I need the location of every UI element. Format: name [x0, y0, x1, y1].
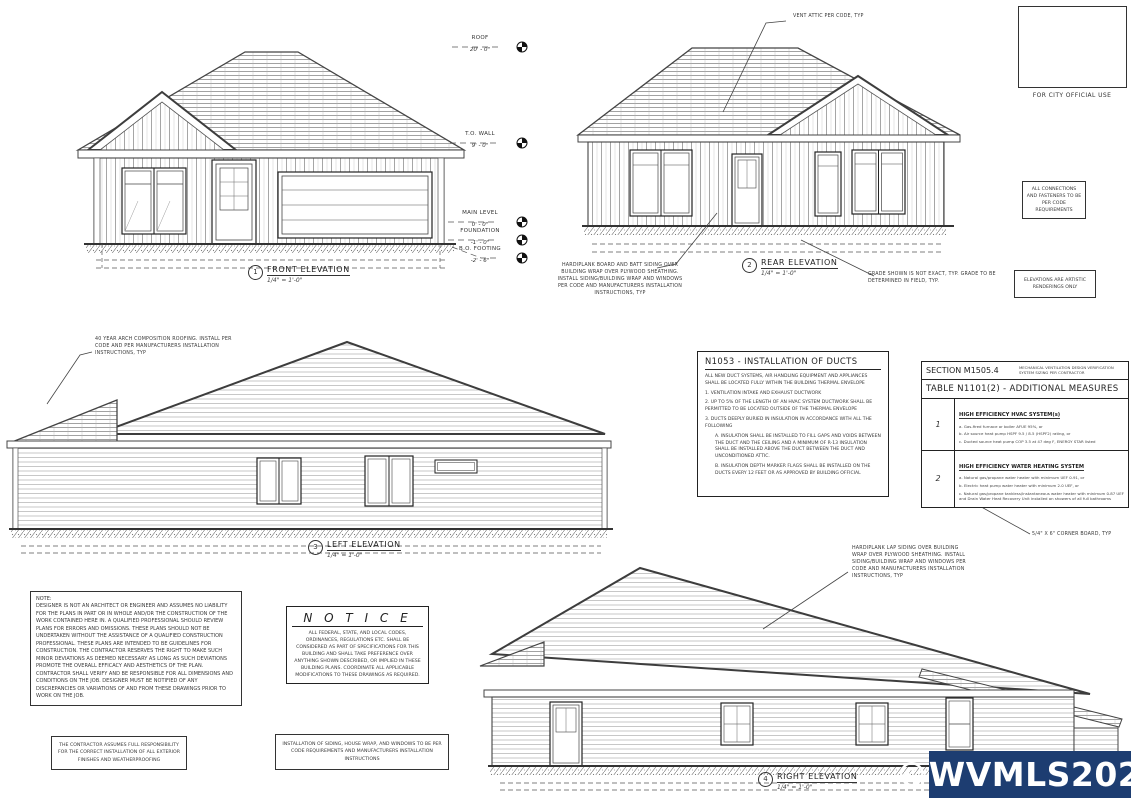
left-wing-roof [7, 400, 117, 444]
left-corner-board-b [602, 448, 607, 529]
ducts-paragraph: 1. VENTILATION INTAKE AND EXHAUST DUCTWO… [705, 391, 881, 398]
right-window-2 [856, 703, 888, 745]
city-official-stamp-box [1018, 6, 1127, 88]
front-elevation-drawing [50, 32, 470, 282]
left-corner-board-a [13, 448, 18, 529]
table-row-number: 1 [922, 399, 955, 450]
view-scale-text: 1/4" = 1'-0" [777, 784, 857, 791]
table-section-note: MECHANICAL VENTILATION DESIGN VERIFICATI… [1016, 362, 1128, 379]
left-window-2 [365, 456, 413, 506]
city-official-label: FOR CITY OFFICIAL USE [1016, 92, 1128, 99]
connections-note-text: ALL CONNECTIONS AND FASTENERS TO BE PER … [1023, 184, 1085, 216]
table-section-label: SECTION M1505.4 [922, 362, 1016, 379]
datum-label: MAIN LEVEL [448, 210, 512, 216]
datum-label: T.O. WALL [448, 131, 512, 137]
table-row-number: 2 [922, 451, 955, 507]
datum-value: 9' - 0" [448, 143, 512, 149]
siding-installation-text: INSTALLATION OF SIDING, HOUSE WRAP, AND … [276, 739, 448, 764]
datum-value: 20' - 0" [448, 47, 512, 53]
connections-note-box: ALL CONNECTIONS AND FASTENERS TO BE PER … [1022, 181, 1086, 219]
front-garage-door [278, 172, 432, 238]
rear-elevation-drawing [572, 32, 967, 267]
artistic-renderings-text: ELEVATIONS ARE ARTISTIC RENDERINGS ONLY [1015, 275, 1095, 293]
grade-note: GRADE SHOWN IS NOT EXACT, TYP. GRADE TO … [868, 272, 1018, 286]
siding-lap-note: HARDIPLANK LAP SIDING OVER BUILDING WRAP… [852, 546, 974, 581]
additional-measures-table: SECTION M1505.4 MECHANICAL VENTILATION D… [921, 361, 1129, 508]
left-fascia [7, 441, 611, 448]
left-window-1 [257, 458, 301, 504]
right-door [550, 702, 582, 766]
ducts-title: N1053 - INSTALLATION OF DUCTS [705, 356, 881, 370]
datum-target-icon [516, 234, 528, 246]
siding-installation-box: INSTALLATION OF SIDING, HOUSE WRAP, AND … [275, 734, 449, 770]
rear-double-window-right [852, 150, 905, 214]
contractor-responsibility-text: THE CONTRACTOR ASSUMES FULL RESPONSIBILI… [52, 740, 186, 765]
front-grade-hatch [86, 245, 454, 253]
left-grade-hatch [11, 530, 607, 538]
table-row: 1 HIGH EFFICIENCY HVAC SYSTEM(s) a. Gas-… [922, 399, 1128, 451]
view-number-badge: 1 [248, 265, 263, 280]
datum-label: B.O. FOOTING [448, 246, 512, 252]
table-section-row: SECTION M1505.4 MECHANICAL VENTILATION D… [922, 362, 1128, 380]
right-window-3 [946, 698, 973, 750]
table-title: TABLE N1101(2) - ADDITIONAL MEASURES [922, 380, 1128, 399]
front-corner-board-left [94, 158, 100, 244]
datum-footing: B.O. FOOTING -2' - 6" [448, 246, 512, 264]
view-number-badge: 3 [308, 540, 323, 555]
front-fascia [78, 150, 464, 158]
left-elevation-drawing [5, 332, 620, 554]
front-corner-board-right [438, 158, 444, 244]
front-double-window [122, 168, 186, 234]
view-title-text: RIGHT ELEVATION [777, 772, 857, 783]
right-window-1 [721, 703, 753, 745]
notice-title: N O T I C E [292, 611, 423, 627]
contractor-responsibility-box: THE CONTRACTOR ASSUMES FULL RESPONSIBILI… [51, 736, 187, 770]
ducts-paragraph: 3. DUCTS DEEPLY BURIED IN INSULATION IN … [705, 417, 881, 431]
rear-fascia [578, 135, 960, 142]
ducts-subparagraph-a: A. INSULATION SHALL BE INSTALLED TO FILL… [715, 434, 881, 461]
datum-target-icon [516, 216, 528, 228]
datum-target-icon [516, 41, 528, 53]
left-vent [435, 460, 477, 473]
datum-target-icon [516, 252, 528, 264]
view-title-text: FRONT ELEVATION [267, 265, 350, 276]
view-scale-text: 1/4" = 1'-0" [327, 552, 401, 559]
mls-watermark: ©WVMLS2026 [929, 751, 1131, 798]
plan-sheet: ROOF 20' - 0" T.O. WALL 9' - 0" MAIN LEV… [0, 0, 1131, 798]
note-title: NOTE: [36, 596, 236, 602]
rear-window-narrow [815, 152, 841, 216]
view-number-badge: 2 [742, 258, 757, 273]
datum-roof: ROOF 20' - 0" [448, 35, 512, 53]
right-elevation-title: 4 RIGHT ELEVATION 1/4" = 1'-0" [758, 772, 857, 791]
vent-attic-note: VENT ATTIC PER CODE, TYP [793, 14, 918, 21]
view-scale-text: 1/4" = 1'-0" [267, 277, 350, 284]
datum-mainlevel: MAIN LEVEL 0' - 0" [448, 210, 512, 228]
right-gable-end [492, 568, 1090, 694]
table-row-body: HIGH EFFICIENCY HVAC SYSTEM(s) a. Gas-fi… [955, 399, 1128, 450]
right-fascia [484, 690, 1074, 697]
datum-target-icon [516, 137, 528, 149]
front-entry-door [212, 160, 256, 244]
table-item: a. Gas-fired furnace or boiler AFUE 95%,… [959, 424, 1124, 429]
table-row-header: HIGH EFFICIENCY WATER HEATING SYSTEM [959, 464, 1084, 471]
left-wall [13, 448, 607, 529]
table-row-body: HIGH EFFICIENCY WATER HEATING SYSTEM a. … [955, 451, 1128, 507]
table-item: c. Natural gas/propane tankless/instanta… [959, 491, 1124, 502]
table-row-header: HIGH EFFICIENCY HVAC SYSTEM(s) [959, 412, 1060, 419]
ducts-code-box: N1053 - INSTALLATION OF DUCTS ALL NEW DU… [697, 351, 889, 497]
view-title-text: REAR ELEVATION [761, 258, 838, 269]
datum-foundation: FOUNDATION -1' - 0" [448, 228, 512, 246]
view-scale-text: 1/4" = 1'-0" [761, 270, 838, 277]
rear-door [732, 154, 762, 226]
datum-label: FOUNDATION [448, 228, 512, 234]
rear-grade-hatch [584, 227, 946, 235]
note-body: DESIGNER IS NOT AN ARCHITECT OR ENGINEER… [36, 603, 236, 701]
rear-double-window-left [630, 150, 692, 216]
table-item: c. Ducted source heat pump COP 3.5 at 47… [959, 439, 1124, 444]
view-number-badge: 4 [758, 772, 773, 787]
table-item: b. Air source heat pump HSPF 9.5 / 8.5 (… [959, 431, 1124, 436]
artistic-renderings-box: ELEVATIONS ARE ARTISTIC RENDERINGS ONLY [1014, 270, 1096, 298]
datum-value: -2' - 6" [448, 258, 512, 264]
view-title-text: LEFT ELEVATION [327, 540, 401, 551]
datum-label: ROOF [448, 35, 512, 41]
notice-body: ALL FEDERAL, STATE, AND LOCAL CODES, ORD… [292, 630, 423, 679]
corner-board-note: 5/4" X 6" CORNER BOARD, TYP [1032, 532, 1127, 539]
table-row: 2 HIGH EFFICIENCY WATER HEATING SYSTEM a… [922, 451, 1128, 507]
designer-note-box: NOTE: DESIGNER IS NOT AN ARCHITECT OR EN… [30, 591, 242, 706]
notice-box: N O T I C E ALL FEDERAL, STATE, AND LOCA… [286, 606, 429, 684]
roofing-note: 40 YEAR ARCH COMPOSITION ROOFING. INSTAL… [95, 337, 235, 358]
mls-watermark-text: ©WVMLS2026 [895, 755, 1131, 794]
front-elevation-title: 1 FRONT ELEVATION 1/4" = 1'-0" [248, 265, 350, 284]
table-item: b. Electric heat pump water heater with … [959, 483, 1124, 488]
ducts-subparagraph-b: B. INSULATION DEPTH MARKER FLAGS SHALL B… [715, 464, 881, 478]
ducts-paragraph: ALL NEW DUCT SYSTEMS, AIR HANDLING EQUIP… [705, 374, 881, 388]
table-item: a. Natural gas/propane water heater with… [959, 475, 1124, 480]
left-elevation-title: 3 LEFT ELEVATION 1/4" = 1'-0" [308, 540, 401, 559]
siding-batt-note: HARDIPLANK BOARD AND BATT SIDING OVER BU… [556, 263, 684, 298]
ducts-paragraph: 2. UP TO 5% OF THE LENGTH OF AN HVAC SYS… [705, 400, 881, 414]
rear-elevation-title: 2 REAR ELEVATION 1/4" = 1'-0" [742, 258, 838, 277]
datum-towall: T.O. WALL 9' - 0" [448, 131, 512, 149]
